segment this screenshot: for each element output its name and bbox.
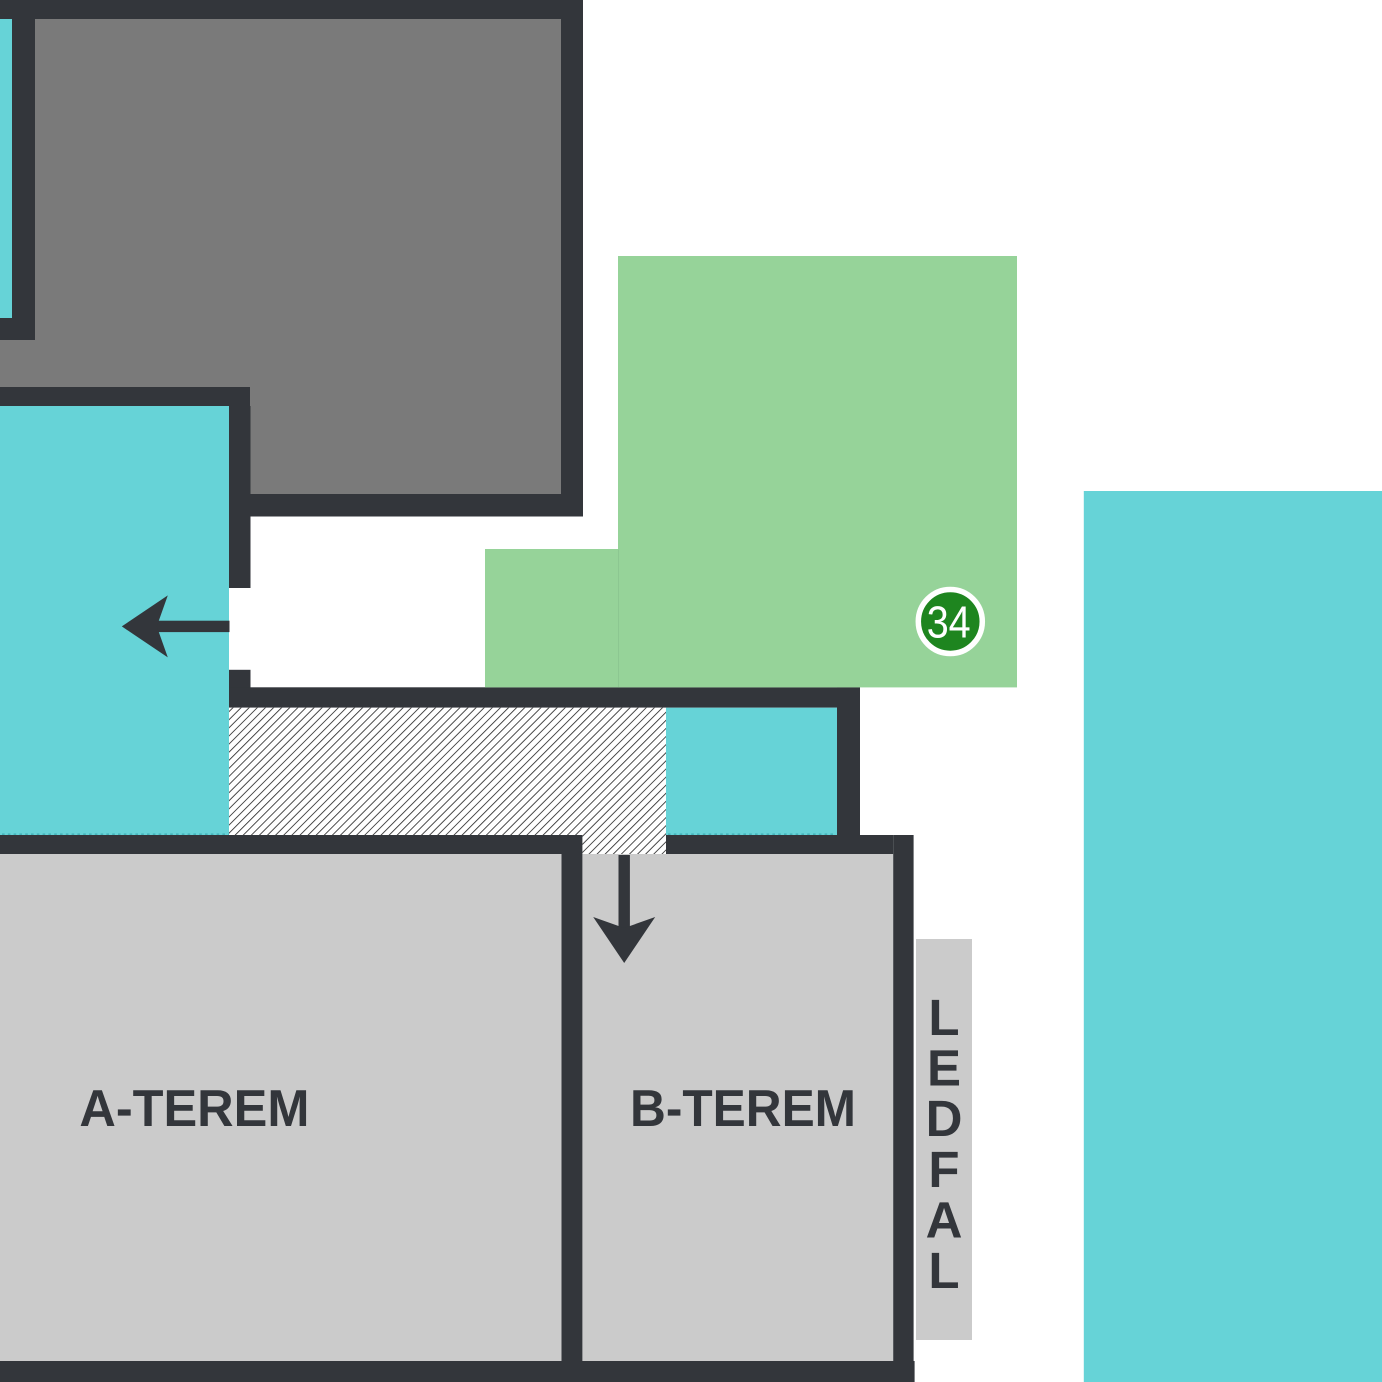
svg-text:34: 34: [927, 597, 971, 648]
svg-text:A-TEREM: A-TEREM: [79, 1080, 309, 1138]
svg-text:A: A: [926, 1191, 963, 1248]
svg-text:E: E: [927, 1040, 961, 1097]
svg-text:L: L: [928, 989, 959, 1046]
svg-text:D: D: [926, 1090, 963, 1147]
svg-text:L: L: [928, 1242, 959, 1299]
svg-text:B-TEREM: B-TEREM: [630, 1080, 856, 1138]
svg-text:F: F: [928, 1141, 959, 1198]
